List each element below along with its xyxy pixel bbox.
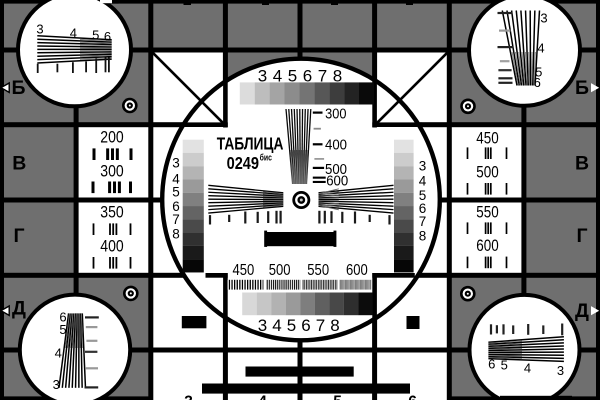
- svg-text:8: 8: [330, 316, 339, 335]
- svg-text:6: 6: [408, 394, 417, 400]
- svg-text:Б: Б: [11, 77, 25, 99]
- svg-text:600: 600: [326, 172, 348, 189]
- svg-text:бис: бис: [260, 153, 272, 163]
- svg-text:4: 4: [55, 345, 62, 360]
- svg-text:550: 550: [307, 262, 329, 279]
- svg-text:600: 600: [476, 237, 498, 255]
- svg-text:3: 3: [540, 11, 547, 26]
- svg-text:Д: Д: [575, 300, 589, 322]
- svg-text:5: 5: [333, 394, 342, 400]
- svg-text:3: 3: [172, 155, 180, 170]
- svg-text:ТАБЛИЦА: ТАБЛИЦА: [217, 133, 284, 153]
- svg-text:550: 550: [476, 204, 498, 222]
- svg-text:8: 8: [419, 229, 427, 244]
- svg-text:5: 5: [287, 316, 296, 335]
- svg-text:3: 3: [419, 159, 427, 174]
- svg-text:3: 3: [184, 394, 193, 400]
- svg-text:0249: 0249: [227, 153, 259, 173]
- svg-text:400: 400: [325, 137, 347, 154]
- svg-text:4: 4: [419, 173, 427, 188]
- svg-text:4: 4: [537, 41, 544, 56]
- svg-text:200: 200: [100, 129, 123, 147]
- svg-text:7: 7: [172, 212, 180, 227]
- svg-text:В: В: [575, 152, 589, 174]
- svg-text:300: 300: [325, 106, 346, 123]
- svg-text:6: 6: [301, 316, 310, 335]
- svg-text:300: 300: [100, 163, 123, 181]
- svg-text:450: 450: [233, 262, 255, 279]
- svg-text:4: 4: [524, 360, 531, 375]
- svg-text:3: 3: [557, 363, 564, 378]
- svg-text:4: 4: [258, 394, 267, 400]
- svg-text:600: 600: [346, 262, 368, 279]
- svg-text:Г: Г: [576, 225, 587, 247]
- svg-text:3: 3: [36, 22, 43, 37]
- svg-text:450: 450: [476, 130, 498, 148]
- svg-text:500: 500: [476, 164, 498, 182]
- svg-text:5: 5: [172, 185, 180, 200]
- svg-text:Б: Б: [575, 77, 589, 99]
- svg-text:7: 7: [316, 316, 325, 335]
- svg-text:В: В: [12, 152, 26, 174]
- svg-text:Г: Г: [13, 225, 24, 247]
- svg-text:4: 4: [272, 316, 281, 335]
- svg-text:350: 350: [100, 204, 123, 222]
- svg-text:7: 7: [419, 214, 427, 229]
- svg-text:Д: Д: [12, 298, 26, 320]
- svg-text:3: 3: [258, 316, 267, 335]
- svg-text:500: 500: [269, 262, 291, 279]
- svg-text:8: 8: [172, 227, 180, 242]
- svg-text:400: 400: [100, 238, 123, 256]
